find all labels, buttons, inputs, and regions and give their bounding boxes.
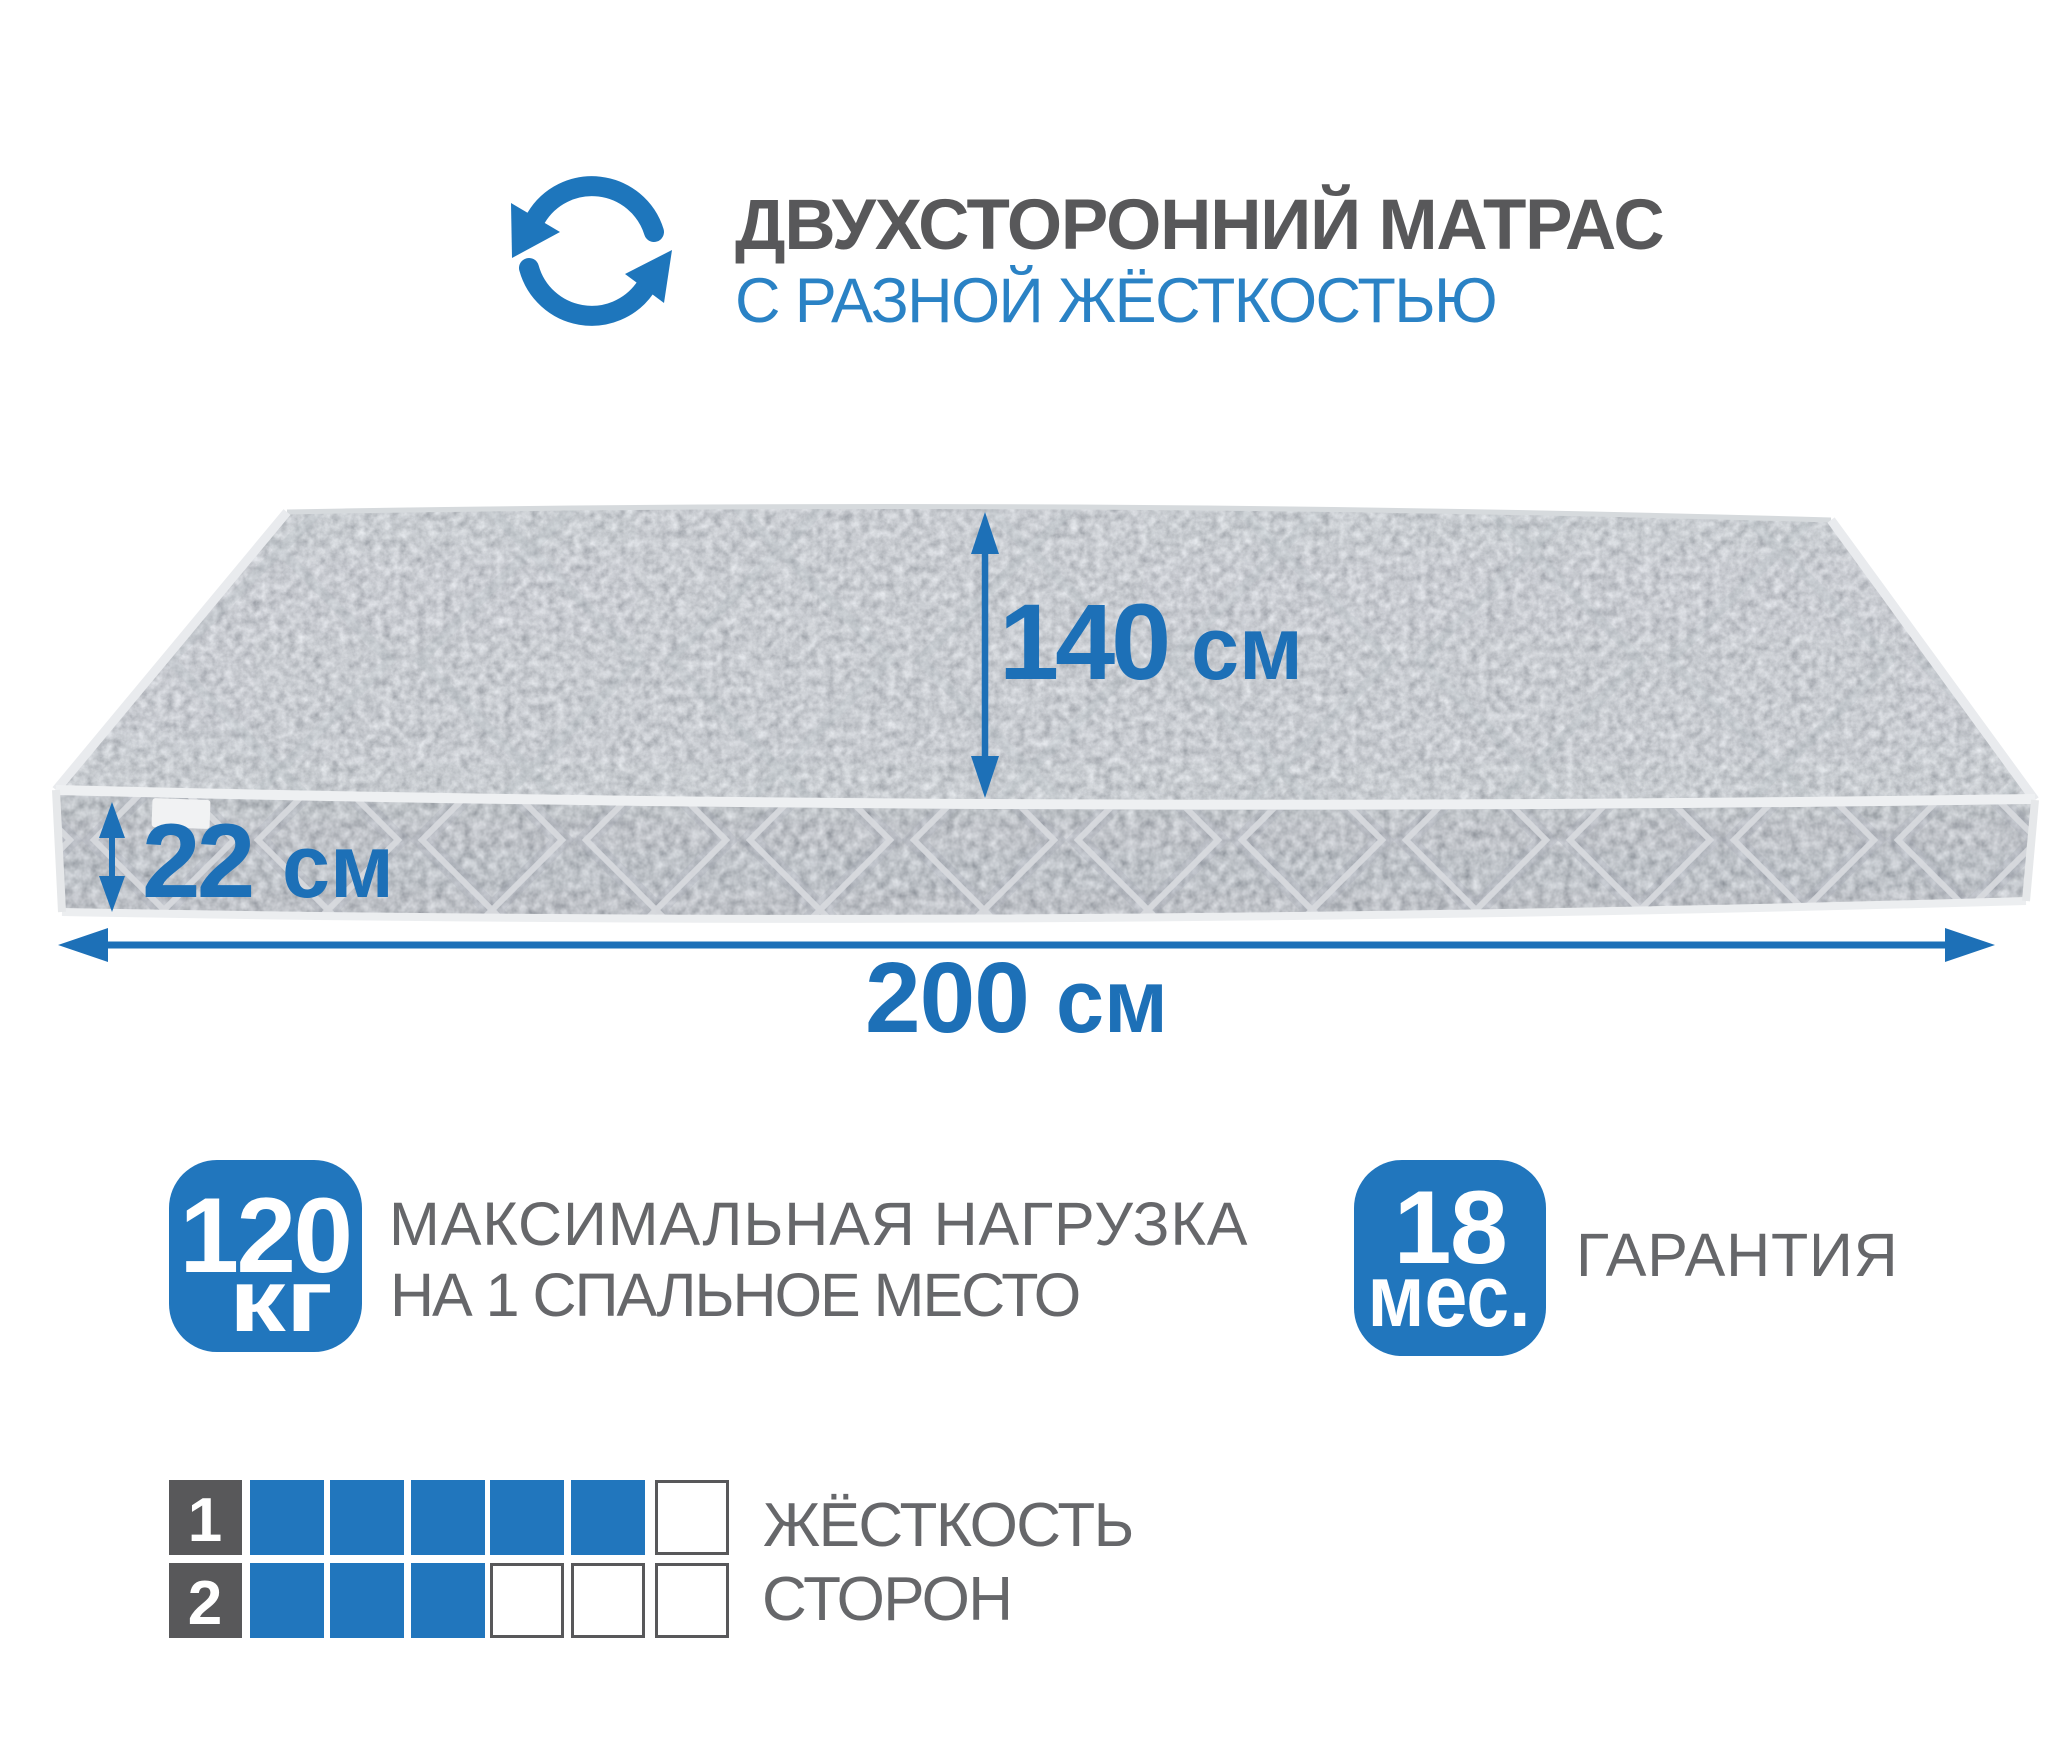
svg-text:СТОРОН: СТОРОН (762, 1565, 1011, 1634)
svg-text:1: 1 (188, 1486, 222, 1555)
svg-text:мес.: мес. (1368, 1246, 1531, 1345)
svg-text:22: 22 (142, 803, 252, 920)
svg-text:см: см (1191, 599, 1303, 699)
svg-text:кг: кг (229, 1251, 333, 1350)
svg-text:ГАРАНТИЯ: ГАРАНТИЯ (1576, 1221, 1899, 1289)
svg-text:2: 2 (188, 1569, 222, 1638)
svg-text:ДВУХСТОРОННИЙ МАТРАС: ДВУХСТОРОННИЙ МАТРАС (735, 185, 1663, 265)
svg-text:200: 200 (865, 942, 1029, 1054)
svg-text:см: см (1056, 952, 1168, 1052)
svg-text:ЖЁСТКОСТЬ: ЖЁСТКОСТЬ (763, 1491, 1133, 1560)
svg-text:НА 1 СПАЛЬНОЕ МЕСТО: НА 1 СПАЛЬНОЕ МЕСТО (390, 1261, 1079, 1329)
svg-text:140: 140 (999, 581, 1167, 702)
svg-text:МАКСИМАЛЬНАЯ НАГРУЗКА: МАКСИМАЛЬНАЯ НАГРУЗКА (389, 1190, 1248, 1258)
svg-text:см: см (282, 817, 394, 917)
svg-text:С РАЗНОЙ ЖЁСТКОСТЬЮ: С РАЗНОЙ ЖЁСТКОСТЬЮ (735, 265, 1496, 336)
